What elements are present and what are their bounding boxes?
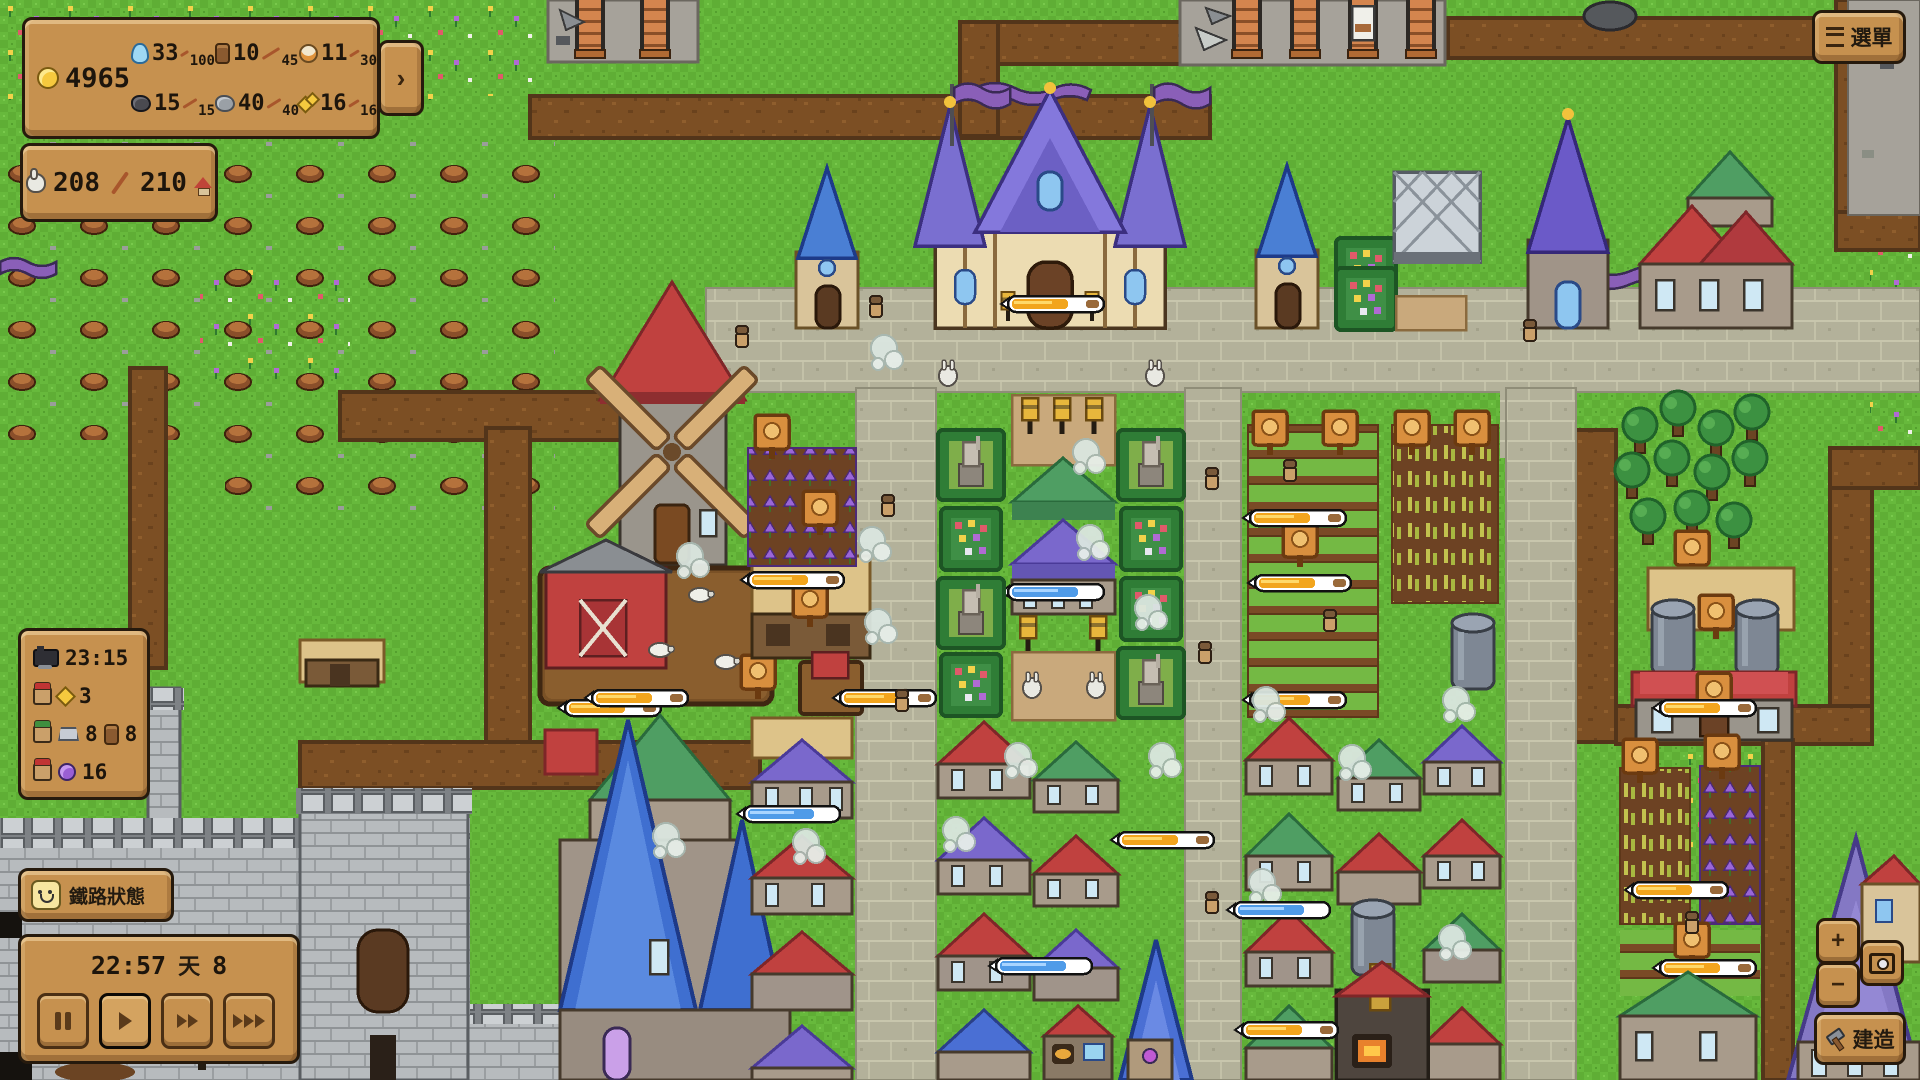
resource-food: 11 30	[299, 28, 377, 78]
zoom-in-button[interactable]: +	[1816, 918, 1860, 964]
menu-button[interactable]: 選單	[1812, 10, 1906, 64]
stone-icon	[215, 95, 235, 112]
central-farm[interactable]	[1243, 411, 1498, 717]
play-button[interactable]	[99, 993, 151, 1049]
fraction-slash	[179, 49, 188, 56]
build-button[interactable]: 建造	[1814, 1012, 1906, 1065]
minus-icon: −	[1831, 971, 1845, 999]
bottom-right-farm[interactable]	[1620, 735, 1760, 1080]
coal-value: 15	[154, 91, 181, 116]
ingot-count: 8	[85, 722, 98, 746]
resource-coal: 15 15	[131, 78, 215, 128]
population-current: 208	[53, 168, 100, 198]
fraction-slash	[349, 49, 360, 57]
status-panel: 23:15 3 8 8 16	[18, 628, 150, 800]
day-label: 天	[178, 949, 200, 981]
fastest-forward-icon	[233, 1014, 265, 1028]
resource-gold-ore: 16 16	[299, 78, 377, 128]
status-row-train: 23:15	[33, 639, 147, 677]
gold-coin-icon	[37, 67, 59, 89]
play-icon	[119, 1012, 132, 1030]
menu-lines-icon	[1826, 27, 1844, 47]
greenhouse[interactable]	[1394, 172, 1480, 330]
train-icon	[33, 649, 59, 667]
chevron-right-icon: ›	[397, 63, 406, 94]
camera-button[interactable]	[1860, 940, 1904, 986]
menu-label: 選單	[1851, 22, 1893, 52]
gold-ore-value: 16	[320, 91, 347, 116]
food-jar-icon	[299, 44, 318, 63]
plus-icon: +	[1831, 927, 1845, 955]
population-panel: 208 210	[20, 143, 218, 222]
amulet-count: 16	[82, 760, 107, 784]
wood-max: 45	[282, 53, 299, 69]
small-hut[interactable]	[300, 640, 384, 686]
playback-controls	[21, 981, 297, 1049]
villager-red-icon	[33, 763, 52, 781]
water-drop-icon	[131, 43, 149, 64]
resource-stone: 40 40	[215, 78, 299, 128]
railway-status-button[interactable]: 鐵路狀態	[18, 868, 174, 922]
villager-green-icon	[33, 725, 52, 743]
time-panel: 22:57 天 8	[18, 934, 300, 1064]
population-max: 210	[140, 168, 187, 198]
iron-ingot-icon	[58, 727, 79, 741]
gem-icon	[55, 685, 76, 706]
water-value: 33	[152, 41, 179, 66]
game-map[interactable]	[0, 0, 1920, 1080]
day-number: 8	[212, 951, 227, 980]
smiley-face-icon	[31, 880, 61, 910]
status-row-amulet: 16	[33, 753, 147, 791]
gold-ore-max: 16	[360, 103, 377, 119]
gold-ore-icon	[299, 94, 317, 112]
fast-forward-button[interactable]	[161, 993, 213, 1049]
fraction-slash	[266, 98, 281, 109]
status-row-gems: 3	[33, 677, 147, 715]
fraction-slash	[261, 46, 280, 59]
food-value: 11	[321, 41, 348, 66]
house-icon	[194, 177, 212, 188]
stone-value: 40	[238, 91, 265, 116]
fraction-slash	[111, 171, 129, 195]
wood-value: 10	[233, 41, 260, 66]
gold-resource: 4965	[25, 63, 131, 94]
fraction-slash	[182, 98, 197, 109]
food-max: 30	[360, 53, 377, 69]
coal-max: 15	[198, 103, 215, 119]
rabbit-icon	[26, 173, 46, 193]
zoom-out-button[interactable]: −	[1816, 962, 1860, 1008]
resource-water: 33 100	[131, 28, 215, 78]
log-count: 8	[125, 722, 138, 746]
status-row-materials: 8 8	[33, 715, 147, 753]
fraction-slash	[348, 99, 359, 108]
build-label: 建造	[1853, 1024, 1895, 1054]
pause-icon	[55, 1012, 71, 1030]
villager-red-icon	[33, 687, 52, 705]
next-train-time: 23:15	[65, 646, 128, 670]
gold-amount: 4965	[65, 63, 130, 94]
wood-log-icon	[215, 43, 230, 64]
resource-grid: 33 100 10 45 11 30 15 15 40 40	[131, 28, 377, 128]
coal-icon	[131, 95, 151, 112]
pause-button[interactable]	[37, 993, 89, 1049]
gem-count: 3	[79, 684, 92, 708]
water-max: 100	[190, 53, 215, 69]
clock-row: 22:57 天 8	[21, 949, 297, 981]
wood-log-icon	[104, 724, 119, 745]
amulet-icon	[58, 763, 76, 781]
camera-icon	[1869, 953, 1895, 974]
flower-garden[interactable]	[1336, 268, 1396, 330]
resource-expand-button[interactable]: ›	[378, 40, 424, 116]
thatched-houses[interactable]	[741, 556, 870, 758]
resource-panel: 4965 33 100 10 45 11 30 15 15 40	[22, 17, 380, 139]
hammer-icon	[1826, 1029, 1846, 1049]
fast-forward-icon	[177, 1014, 198, 1028]
fastest-forward-button[interactable]	[223, 993, 275, 1049]
clock-time: 22:57	[91, 951, 166, 980]
railway-status-label: 鐵路狀態	[69, 882, 145, 909]
resource-wood: 10 45	[215, 28, 299, 78]
game-screen: 4965 33 100 10 45 11 30 15 15 40	[0, 0, 1920, 1080]
